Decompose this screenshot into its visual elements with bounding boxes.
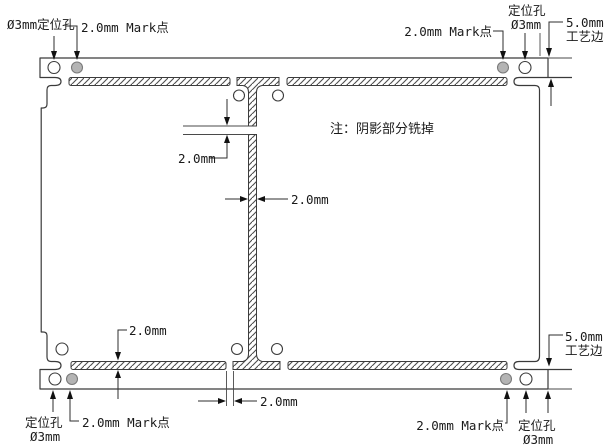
locating-hole-bottom-right [520, 373, 532, 385]
milling-note: 注：阴影部分铣掉 [330, 122, 434, 137]
board-hole-top-center-right [273, 90, 284, 101]
label-top-left-hole: Ø3mm定位孔 [7, 17, 75, 32]
dim-bottom-tab-gap: 2.0mm [260, 394, 298, 409]
label-top-right-edge-1: 5.0mm [566, 15, 604, 30]
down-arrow-icon [522, 51, 528, 60]
label-bottom-right-hole-1: 定位孔 [518, 418, 556, 433]
right-arrow-icon [240, 196, 248, 202]
left-arrow-icon [234, 398, 242, 404]
down-arrow-icon [546, 48, 552, 57]
down-arrow-icon [546, 358, 552, 367]
down-arrow-icon [74, 51, 80, 60]
up-arrow-icon [523, 390, 529, 399]
mark-point-top-left [72, 62, 83, 73]
mark-point-bottom-right [501, 374, 512, 385]
bottom-slot-right-segment [288, 362, 507, 370]
panel-outline-left [40, 58, 548, 389]
right-arrow-icon [218, 398, 226, 404]
board-hole-bottom-left [56, 343, 68, 355]
label-top-right-hole-2: Ø3mm [511, 17, 541, 32]
dim-channel-width: 2.0mm [291, 192, 329, 207]
locating-hole-top-left [48, 62, 60, 74]
strip-dim-down-shaft [118, 330, 127, 352]
label-bottom-right-edge-2: 工艺边 [565, 343, 603, 358]
label-top-right-hole-1: 定位孔 [508, 3, 546, 18]
down-arrow-icon [115, 352, 121, 361]
label-top-right-edge-2: 工艺边 [566, 29, 604, 44]
up-arrow-icon [67, 390, 73, 399]
bottom-slot-left-segment [71, 362, 226, 370]
leader-top-right-mark [493, 31, 503, 51]
up-arrow-icon [504, 390, 510, 399]
top-tee-and-stem [237, 78, 279, 127]
board-hole-bottom-center-right [272, 344, 283, 355]
locating-hole-top-right [519, 62, 531, 74]
leader-bottom-right-edge [549, 335, 563, 358]
mark-point-bottom-left [67, 374, 78, 385]
locating-hole-bottom-left [49, 373, 61, 385]
up-arrow-icon [115, 370, 121, 378]
dim-rout-gap: 2.0mm [178, 151, 216, 166]
board-hole-bottom-center-left [232, 344, 243, 355]
panel-drawing: Ø3mm定位孔 2.0mm Mark点 2.0mm Mark点 定位孔 Ø3mm… [0, 0, 605, 445]
up-arrow-icon [224, 135, 230, 143]
label-top-left-mark: 2.0mm Mark点 [81, 20, 169, 35]
label-bottom-left-hole-1: 定位孔 [25, 415, 63, 430]
label-bottom-left-hole-2: Ø3mm [30, 429, 60, 444]
up-arrow-icon [545, 391, 551, 400]
up-arrow-icon [548, 79, 554, 88]
leader-bottom-right-mark [505, 399, 507, 423]
down-arrow-icon [224, 117, 230, 126]
top-slot-left-segment [69, 78, 230, 86]
pcb-panel-diagram: Ø3mm定位孔 2.0mm Mark点 2.0mm Mark点 定位孔 Ø3mm… [0, 0, 605, 445]
leader-top-right-edge [549, 22, 563, 48]
dim-strip-thickness: 2.0mm [129, 323, 167, 338]
top-slot-right-segment [287, 78, 507, 86]
board-hole-top-center-left [234, 90, 245, 101]
left-arrow-icon [257, 196, 265, 202]
label-bottom-right-edge-1: 5.0mm [565, 329, 603, 344]
panel-outline-right [514, 78, 572, 370]
up-arrow-icon [50, 390, 56, 399]
leader-bottom-left-mark [70, 399, 79, 421]
label-top-right-mark: 2.0mm Mark点 [404, 24, 492, 39]
mark-point-top-right [498, 62, 509, 73]
gap-extension-lines [183, 126, 249, 135]
center-channel-lower [233, 135, 280, 370]
down-arrow-icon [500, 51, 506, 60]
label-bottom-left-mark: 2.0mm Mark点 [82, 415, 170, 430]
label-bottom-right-mark: 2.0mm Mark点 [416, 418, 504, 433]
label-bottom-right-hole-2: Ø3mm [523, 432, 553, 445]
down-arrow-icon [51, 51, 57, 60]
